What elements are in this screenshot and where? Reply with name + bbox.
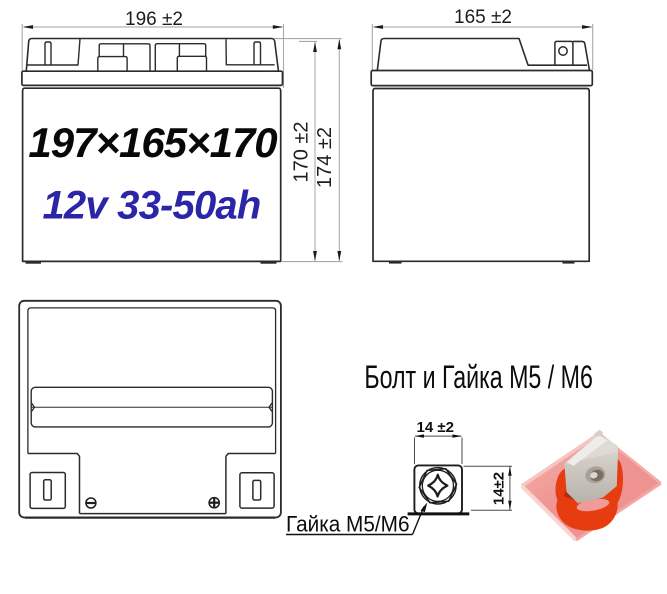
svg-text:165 ±2: 165 ±2 xyxy=(454,7,512,28)
svg-text:Болт и Гайка М5 / М6: Болт и Гайка М5 / М6 xyxy=(364,359,593,395)
svg-text:197×165×170: 197×165×170 xyxy=(28,119,277,166)
svg-text:14±2: 14±2 xyxy=(491,472,508,505)
svg-text:12v 33-50ah: 12v 33-50ah xyxy=(42,184,260,228)
svg-text:170 ±2: 170 ±2 xyxy=(291,121,313,182)
svg-text:Гайка М5/М6: Гайка М5/М6 xyxy=(286,511,410,536)
svg-text:174 ±2: 174 ±2 xyxy=(314,127,336,188)
svg-text:14 ±2: 14 ±2 xyxy=(417,419,454,436)
